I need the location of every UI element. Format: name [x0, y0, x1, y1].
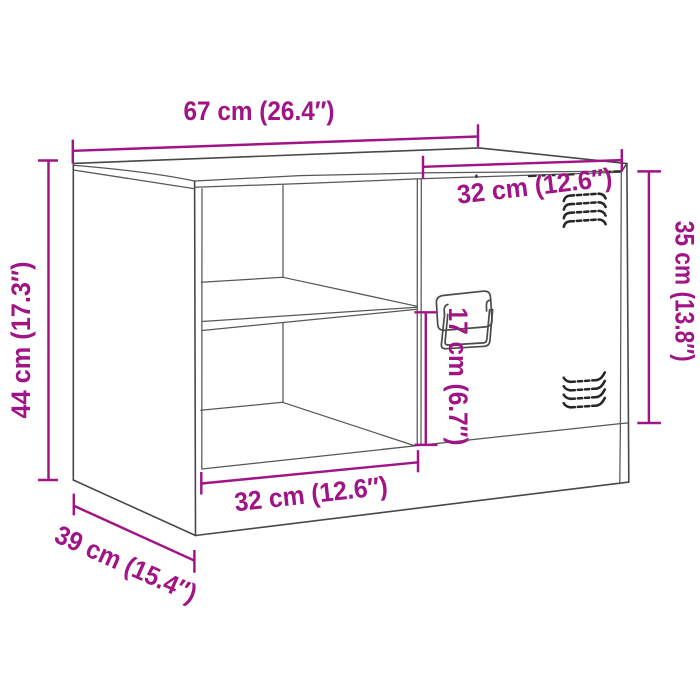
svg-text:35 cm (13.8″): 35 cm (13.8″) — [670, 221, 700, 362]
svg-text:44 cm (17.3″): 44 cm (17.3″) — [6, 262, 36, 419]
svg-text:67 cm (26.4″): 67 cm (26.4″) — [184, 96, 335, 126]
svg-text:17 cm (6.7″): 17 cm (6.7″) — [443, 308, 473, 446]
